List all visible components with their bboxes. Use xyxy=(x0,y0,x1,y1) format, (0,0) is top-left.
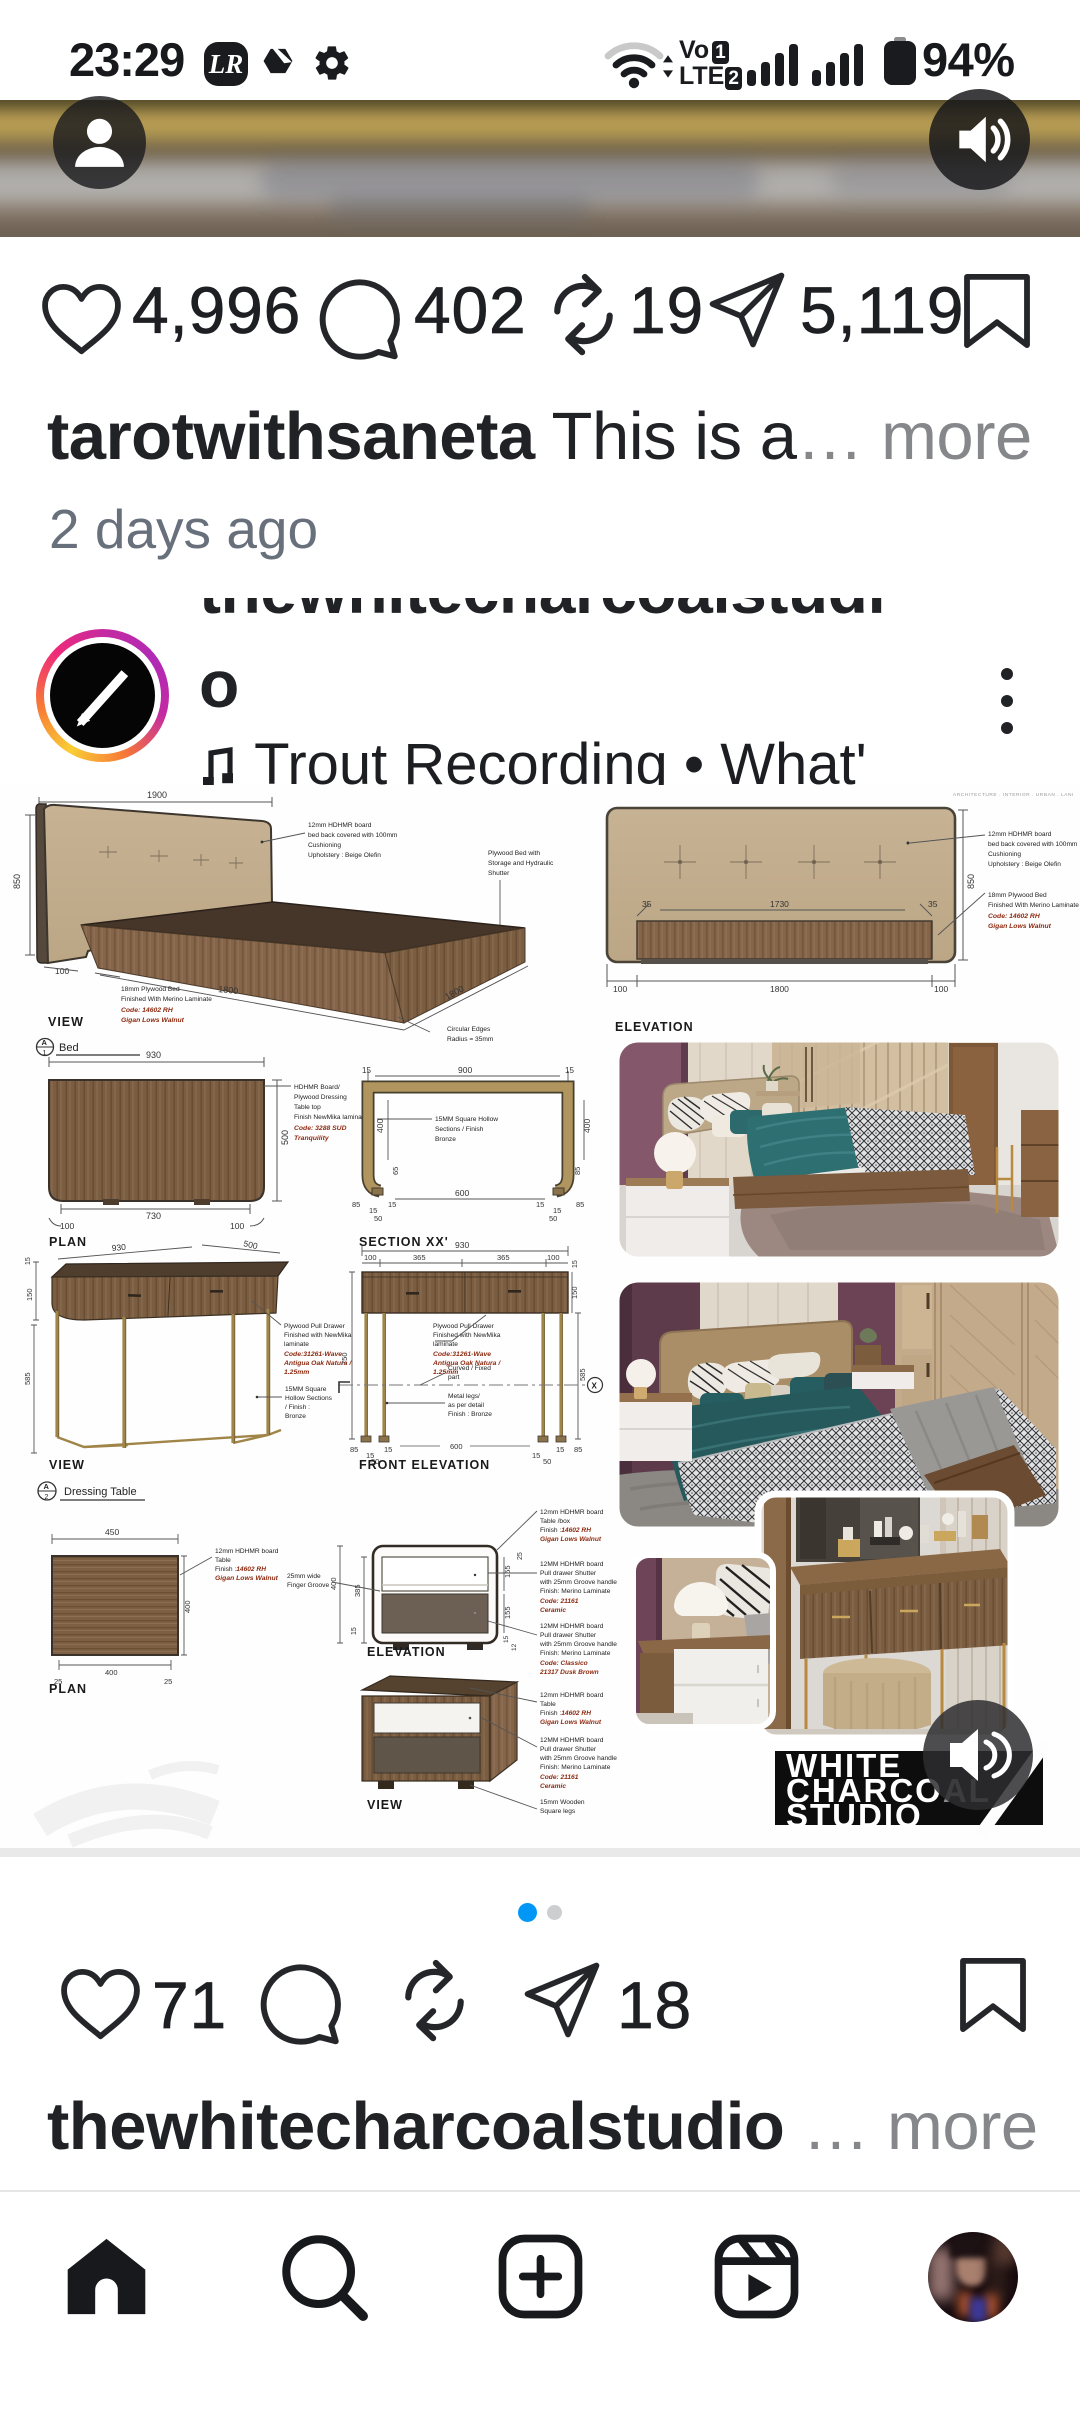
svg-text:100: 100 xyxy=(547,1253,560,1262)
svg-text:1900: 1900 xyxy=(147,790,167,800)
svg-text:85: 85 xyxy=(350,1445,358,1454)
svg-text:Circular Edges: Circular Edges xyxy=(447,1026,491,1033)
svg-text:12MM HDHMR board: 12MM HDHMR board xyxy=(540,1623,604,1630)
svg-text:18mm Plywood Bed: 18mm Plywood Bed xyxy=(988,892,1047,899)
svg-text:600: 600 xyxy=(455,1188,469,1198)
svg-text:Dressing Table: Dressing Table xyxy=(64,1486,137,1498)
svg-text:25: 25 xyxy=(164,1677,172,1686)
svg-text:Table: Table xyxy=(540,1701,556,1708)
svg-text:85: 85 xyxy=(352,1200,360,1209)
svg-text:Finish: Merino Laminate: Finish: Merino Laminate xyxy=(540,1650,611,1657)
svg-text:with 25mm Groove handle: with 25mm Groove handle xyxy=(539,1641,617,1648)
svg-text:laminate: laminate xyxy=(433,1341,458,1348)
svg-text:100: 100 xyxy=(230,1221,244,1231)
svg-text:Gigan Lows Walnut: Gigan Lows Walnut xyxy=(540,1719,602,1726)
svg-text:Finished With Merino Laminate: Finished With Merino Laminate xyxy=(988,902,1079,909)
svg-text:Upholstery : Beige Olefin: Upholstery : Beige Olefin xyxy=(308,852,381,859)
svg-text:Curved / Fixed: Curved / Fixed xyxy=(448,1365,491,1372)
svg-text:18mm Plywood Bed: 18mm Plywood Bed xyxy=(121,986,180,993)
svg-text:850: 850 xyxy=(12,874,22,889)
svg-text:Plywood Bed with: Plywood Bed with xyxy=(488,850,540,857)
svg-text:150: 150 xyxy=(25,1288,34,1301)
svg-text:25: 25 xyxy=(517,1552,524,1560)
svg-text:laminate: laminate xyxy=(284,1341,309,1348)
svg-text:Code: 21161: Code: 21161 xyxy=(540,1774,579,1781)
svg-text:Shutter: Shutter xyxy=(488,870,510,877)
svg-text:400: 400 xyxy=(105,1668,118,1677)
svg-text:155: 155 xyxy=(503,1606,512,1619)
svg-text:Gigan Lows Walnut: Gigan Lows Walnut xyxy=(121,1017,185,1024)
svg-text:Storage and Hydraulic: Storage and Hydraulic xyxy=(488,860,554,867)
svg-text:600: 600 xyxy=(450,1442,463,1451)
svg-text:15: 15 xyxy=(351,1627,358,1635)
svg-text:1800: 1800 xyxy=(218,984,239,996)
svg-text:100: 100 xyxy=(613,984,627,994)
svg-text:1800: 1800 xyxy=(770,984,789,994)
svg-text:25mm wide: 25mm wide xyxy=(287,1573,321,1580)
svg-text:12mm HDHMR board: 12mm HDHMR board xyxy=(308,822,372,829)
svg-text:15: 15 xyxy=(532,1451,540,1460)
svg-text:Gigan Lows Walnut: Gigan Lows Walnut xyxy=(988,923,1052,930)
svg-text:PLAN: PLAN xyxy=(49,1682,87,1696)
svg-text:STUDIO: STUDIO xyxy=(786,1797,923,1834)
svg-text:100: 100 xyxy=(55,966,69,976)
svg-text:12MM HDHMR board: 12MM HDHMR board xyxy=(540,1737,604,1744)
svg-text:Code: Classico: Code: Classico xyxy=(540,1660,588,1667)
svg-text:Bed: Bed xyxy=(59,1042,79,1054)
svg-text:1.25mm: 1.25mm xyxy=(284,1369,309,1376)
svg-text:50: 50 xyxy=(543,1457,551,1466)
svg-text:15: 15 xyxy=(362,1066,371,1075)
svg-text:400: 400 xyxy=(329,1577,338,1590)
svg-text:1: 1 xyxy=(43,1050,47,1057)
svg-text:930: 930 xyxy=(111,1242,126,1253)
svg-text:VIEW: VIEW xyxy=(49,1458,85,1472)
svg-text:400: 400 xyxy=(375,1119,385,1133)
svg-text:750: 750 xyxy=(340,1352,349,1365)
svg-text:Cushioning: Cushioning xyxy=(988,851,1021,858)
svg-text:/ Finish :: / Finish : xyxy=(285,1404,310,1411)
svg-text:Ceramic: Ceramic xyxy=(540,1607,566,1614)
svg-text:930: 930 xyxy=(146,1050,161,1060)
svg-text:Code: 3288 SUD: Code: 3288 SUD xyxy=(294,1125,347,1132)
svg-text:585: 585 xyxy=(23,1372,32,1385)
svg-text:900: 900 xyxy=(458,1065,472,1075)
svg-text:Sections / Finish: Sections / Finish xyxy=(435,1126,484,1133)
svg-text:85: 85 xyxy=(573,1167,582,1175)
svg-text:Gigan Lows Walnut: Gigan Lows Walnut xyxy=(215,1575,279,1582)
svg-text:PLAN: PLAN xyxy=(49,1235,87,1249)
svg-text:365: 365 xyxy=(497,1253,510,1262)
svg-text:12mm HDHMR board: 12mm HDHMR board xyxy=(988,831,1052,838)
svg-text:VIEW: VIEW xyxy=(48,1015,84,1029)
svg-text:730: 730 xyxy=(146,1211,161,1221)
svg-text:Pull drawer Shutter: Pull drawer Shutter xyxy=(540,1746,597,1753)
svg-text:400: 400 xyxy=(183,1600,192,1613)
svg-text:HDHMR Board/: HDHMR Board/ xyxy=(294,1084,340,1091)
svg-text:Code:31261-Wave: Code:31261-Wave xyxy=(433,1351,491,1358)
svg-text:35: 35 xyxy=(928,899,938,909)
svg-text:Plywood Pull Drawer: Plywood Pull Drawer xyxy=(433,1323,495,1330)
svg-text:85: 85 xyxy=(574,1445,582,1454)
svg-text:Metal legs/: Metal legs/ xyxy=(448,1393,480,1400)
svg-text:A: A xyxy=(44,1482,50,1491)
svg-text:12mm HDHMR board: 12mm HDHMR board xyxy=(215,1548,279,1555)
svg-text:155: 155 xyxy=(503,1565,512,1578)
svg-text:Finished with NewMika: Finished with NewMika xyxy=(433,1332,501,1339)
svg-text:part: part xyxy=(448,1374,460,1381)
svg-text:Gigan Lows Walnut: Gigan Lows Walnut xyxy=(540,1536,602,1543)
svg-text:X: X xyxy=(592,1382,598,1391)
svg-text:Bronze: Bronze xyxy=(285,1413,306,1420)
svg-text:65: 65 xyxy=(391,1167,400,1175)
svg-text:ELEVATION: ELEVATION xyxy=(367,1645,446,1659)
svg-text:as per detail: as per detail xyxy=(448,1402,484,1409)
svg-text:100: 100 xyxy=(60,1221,74,1231)
svg-text:Hollow Sections: Hollow Sections xyxy=(285,1395,333,1402)
svg-text:12: 12 xyxy=(511,1643,518,1651)
svg-text:100: 100 xyxy=(364,1253,377,1262)
svg-text:15: 15 xyxy=(503,1635,510,1643)
svg-text:15: 15 xyxy=(565,1066,574,1075)
svg-text:50: 50 xyxy=(374,1214,382,1223)
svg-text:15: 15 xyxy=(556,1445,564,1454)
svg-text:Finish : Bronze: Finish : Bronze xyxy=(448,1411,492,1418)
svg-text:Code: 21161: Code: 21161 xyxy=(540,1598,579,1605)
svg-text:with 25mm Groove handle: with 25mm Groove handle xyxy=(539,1579,617,1586)
svg-text:21317 Dusk Brown: 21317 Dusk Brown xyxy=(539,1669,599,1676)
svg-text:FRONT ELEVATION: FRONT ELEVATION xyxy=(359,1458,490,1472)
svg-text:15mm Wooden: 15mm Wooden xyxy=(540,1799,585,1806)
svg-text:Table: Table xyxy=(215,1557,231,1564)
svg-text:Finish: Merino Laminate: Finish: Merino Laminate xyxy=(540,1764,611,1771)
svg-text:Square legs: Square legs xyxy=(540,1808,576,1815)
svg-text:930: 930 xyxy=(455,1240,469,1250)
svg-text:bed back covered with 100mm: bed back covered with 100mm xyxy=(988,841,1078,848)
svg-text:85: 85 xyxy=(576,1200,584,1209)
svg-text:Plywood Pull Drawer: Plywood Pull Drawer xyxy=(284,1323,346,1330)
svg-text:A: A xyxy=(42,1038,48,1047)
svg-text:Pull drawer Shutter: Pull drawer Shutter xyxy=(540,1632,597,1639)
svg-text:bed back covered with 100mm: bed back covered with 100mm xyxy=(308,832,398,839)
svg-text:Pull drawer Shutter: Pull drawer Shutter xyxy=(540,1570,597,1577)
svg-text:Radius = 35mm: Radius = 35mm xyxy=(447,1036,494,1043)
svg-text:ELEVATION: ELEVATION xyxy=(615,1020,694,1034)
svg-text:VIEW: VIEW xyxy=(367,1798,403,1812)
svg-text:Finger Groove: Finger Groove xyxy=(287,1582,329,1589)
svg-text:15: 15 xyxy=(388,1200,396,1209)
svg-text:15: 15 xyxy=(384,1445,392,1454)
svg-text:Code: 14602 RH: Code: 14602 RH xyxy=(121,1007,174,1014)
svg-text:1730: 1730 xyxy=(770,899,789,909)
svg-text:35: 35 xyxy=(642,899,652,909)
svg-text:Table top: Table top xyxy=(294,1104,321,1111)
svg-text:Table /box: Table /box xyxy=(540,1518,571,1525)
svg-text:850: 850 xyxy=(966,874,976,889)
svg-text:Code:31261-Wave: Code:31261-Wave xyxy=(284,1351,342,1358)
svg-text:with 25mm Groove handle: with 25mm Groove handle xyxy=(539,1755,617,1762)
svg-text:365: 365 xyxy=(413,1253,426,1262)
svg-text:SECTION XX': SECTION XX' xyxy=(359,1235,449,1249)
svg-text:12mm HDHMR board: 12mm HDHMR board xyxy=(540,1692,604,1699)
svg-text:15: 15 xyxy=(536,1200,544,1209)
svg-text:Finished With Merino Laminate: Finished With Merino Laminate xyxy=(121,996,212,1003)
svg-text:Code: 14602 RH: Code: 14602 RH xyxy=(988,913,1041,920)
svg-text:Finish :14602 RH: Finish :14602 RH xyxy=(540,1527,591,1534)
svg-text:585: 585 xyxy=(578,1368,587,1381)
svg-text:Finish NewMika laminate: Finish NewMika laminate xyxy=(294,1114,368,1121)
svg-text:Finished with NewMika: Finished with NewMika xyxy=(284,1332,352,1339)
svg-text:Cushioning: Cushioning xyxy=(308,842,341,849)
svg-text:400: 400 xyxy=(582,1119,592,1133)
svg-text:500: 500 xyxy=(280,1130,290,1145)
svg-text:50: 50 xyxy=(549,1214,557,1223)
svg-text:12mm HDHMR board: 12mm HDHMR board xyxy=(540,1509,604,1516)
svg-text:12MM HDHMR board: 12MM HDHMR board xyxy=(540,1561,604,1568)
svg-text:450: 450 xyxy=(105,1527,119,1537)
svg-text:100: 100 xyxy=(934,984,948,994)
svg-text:Plywood Dressing: Plywood Dressing xyxy=(294,1094,347,1101)
svg-text:ARCHITECTURE . INTERIOR . URBA: ARCHITECTURE . INTERIOR . URBAN . LANI xyxy=(953,792,1074,798)
svg-text:Finish :14602 RH: Finish :14602 RH xyxy=(540,1710,591,1717)
svg-text:Finish :14602 RH: Finish :14602 RH xyxy=(215,1566,266,1573)
svg-text:Ceramic: Ceramic xyxy=(540,1783,566,1790)
svg-text:Tranquility: Tranquility xyxy=(294,1135,330,1142)
svg-text:15MM Square Hollow: 15MM Square Hollow xyxy=(435,1116,498,1123)
svg-text:Upholstery : Beige Olefin: Upholstery : Beige Olefin xyxy=(988,861,1061,868)
svg-text:15MM Square: 15MM Square xyxy=(285,1386,327,1393)
svg-text:15: 15 xyxy=(25,1257,32,1265)
svg-text:2: 2 xyxy=(45,1494,49,1501)
svg-text:150: 150 xyxy=(570,1286,579,1299)
svg-text:Finish: Merino Laminate: Finish: Merino Laminate xyxy=(540,1588,611,1595)
svg-text:Bronze: Bronze xyxy=(435,1136,456,1143)
svg-text:15: 15 xyxy=(572,1260,579,1268)
